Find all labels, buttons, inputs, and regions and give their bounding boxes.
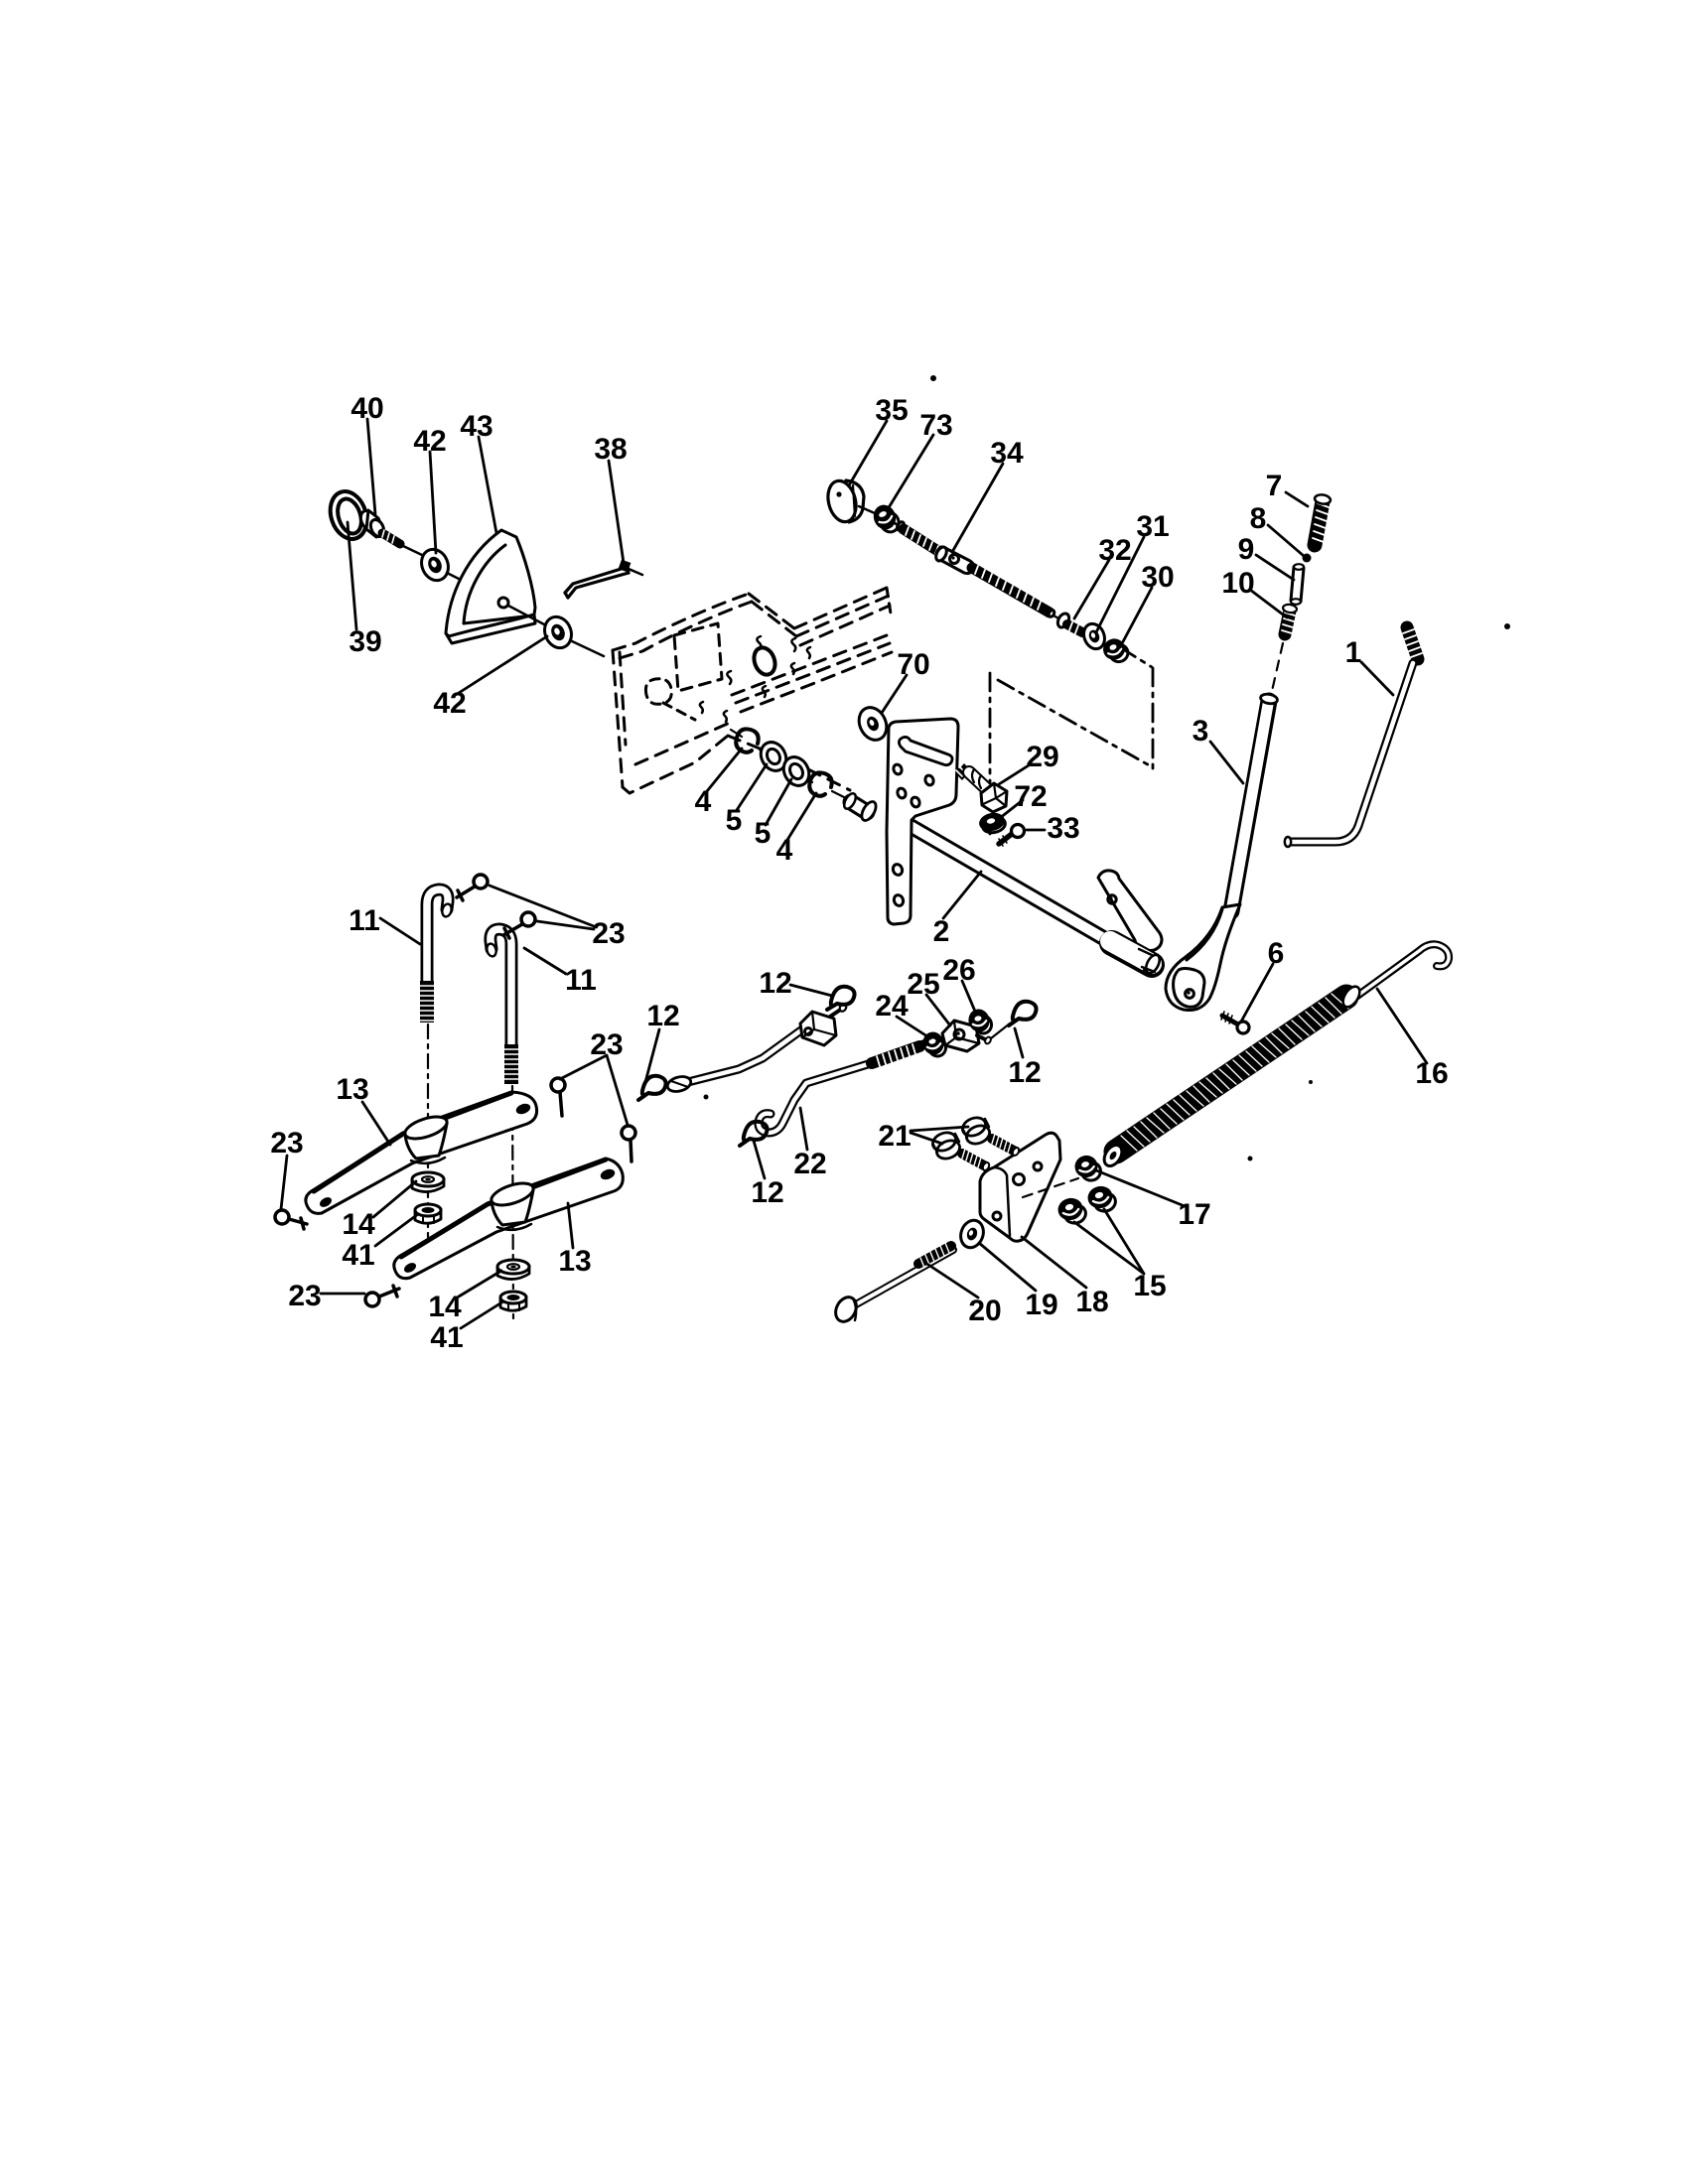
svg-text:33: 33 <box>1047 812 1079 845</box>
svg-text:42: 42 <box>413 425 446 458</box>
svg-text:39: 39 <box>349 625 381 658</box>
svg-text:4: 4 <box>776 834 793 867</box>
svg-text:9: 9 <box>1238 533 1255 566</box>
svg-text:41: 41 <box>342 1239 374 1272</box>
svg-text:14: 14 <box>342 1208 375 1241</box>
svg-text:3: 3 <box>1193 715 1209 748</box>
svg-text:1: 1 <box>1345 636 1362 669</box>
svg-text:7: 7 <box>1266 470 1283 502</box>
svg-text:25: 25 <box>907 968 939 1001</box>
svg-text:19: 19 <box>1025 1289 1057 1321</box>
svg-text:31: 31 <box>1136 510 1169 543</box>
svg-text:24: 24 <box>875 990 909 1023</box>
svg-text:29: 29 <box>1026 741 1058 773</box>
svg-text:4: 4 <box>695 785 712 818</box>
svg-text:12: 12 <box>751 1176 783 1209</box>
svg-text:43: 43 <box>460 410 492 443</box>
svg-text:12: 12 <box>759 967 791 1000</box>
svg-text:30: 30 <box>1141 561 1174 594</box>
svg-text:14: 14 <box>428 1291 462 1323</box>
svg-text:21: 21 <box>878 1120 911 1153</box>
svg-text:23: 23 <box>592 917 625 950</box>
svg-text:26: 26 <box>942 954 975 987</box>
svg-text:18: 18 <box>1075 1286 1108 1318</box>
svg-text:8: 8 <box>1250 502 1267 535</box>
svg-text:22: 22 <box>793 1148 826 1180</box>
svg-text:5: 5 <box>726 804 743 837</box>
svg-text:40: 40 <box>351 392 383 425</box>
svg-text:16: 16 <box>1415 1057 1448 1090</box>
svg-text:20: 20 <box>968 1295 1001 1327</box>
svg-text:12: 12 <box>1008 1056 1041 1089</box>
svg-text:41: 41 <box>430 1321 463 1354</box>
svg-text:12: 12 <box>646 1000 679 1032</box>
svg-text:23: 23 <box>590 1028 623 1061</box>
svg-text:35: 35 <box>875 394 908 427</box>
svg-text:15: 15 <box>1133 1270 1166 1302</box>
svg-text:34: 34 <box>990 437 1024 470</box>
svg-text:42: 42 <box>433 687 466 720</box>
svg-text:2: 2 <box>933 915 950 948</box>
svg-text:32: 32 <box>1098 534 1131 567</box>
svg-text:17: 17 <box>1178 1198 1210 1231</box>
svg-text:70: 70 <box>897 648 929 681</box>
svg-text:72: 72 <box>1014 780 1047 813</box>
svg-text:13: 13 <box>336 1073 368 1106</box>
svg-text:6: 6 <box>1268 937 1285 970</box>
svg-text:38: 38 <box>594 433 627 466</box>
svg-text:23: 23 <box>270 1127 303 1160</box>
svg-text:73: 73 <box>919 409 952 442</box>
svg-text:13: 13 <box>558 1245 591 1278</box>
svg-text:10: 10 <box>1221 567 1254 600</box>
svg-text:11: 11 <box>349 904 380 937</box>
svg-text:5: 5 <box>755 817 772 850</box>
svg-text:23: 23 <box>288 1280 321 1312</box>
svg-text:11: 11 <box>565 964 597 997</box>
